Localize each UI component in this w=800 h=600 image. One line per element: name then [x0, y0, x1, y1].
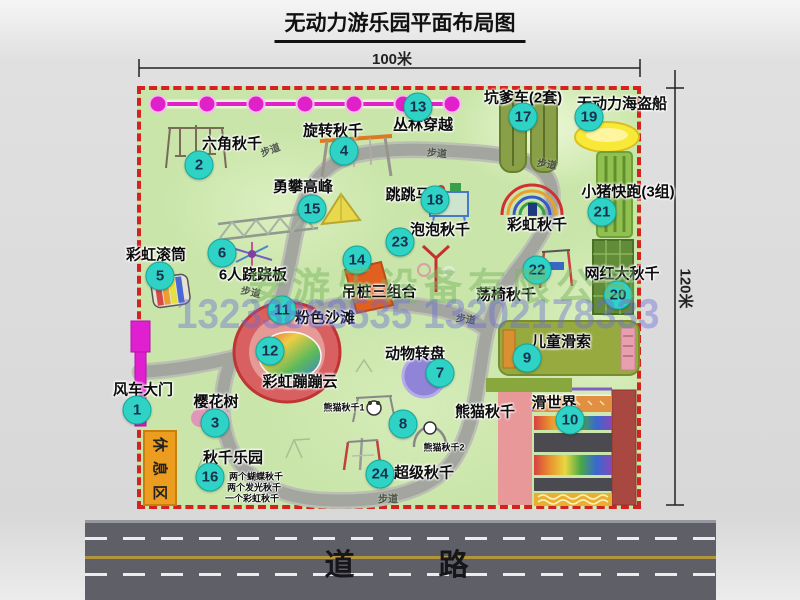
road-label: 道 路 — [325, 540, 477, 584]
attraction-label-24: 超级秋千 — [394, 462, 454, 483]
attraction-badge-17: 17 — [509, 103, 538, 132]
attraction-badge-23: 23 — [386, 228, 415, 257]
attraction-badge-20: 20 — [604, 281, 633, 310]
walkway-label-4: 步道 — [240, 282, 263, 301]
attraction-label-8: 熊猫秋千 — [455, 401, 515, 422]
panda-swing-1-label: 熊猫秋千1 — [323, 401, 364, 414]
rainbow-swing-label: 彩虹秋千 — [507, 214, 567, 235]
attraction-badge-10: 10 — [556, 406, 585, 435]
attraction-label-23: 泡泡秋千 — [410, 219, 470, 240]
attraction-badge-22: 22 — [523, 256, 552, 285]
walkway-label-5: 步道 — [455, 309, 477, 327]
attraction-label-14: 吊桩三组合 — [341, 281, 416, 302]
road: 道 路 — [85, 520, 716, 600]
attraction-badge-14: 14 — [343, 246, 372, 275]
attraction-badge-2: 2 — [185, 151, 214, 180]
attraction-badge-5: 5 — [146, 262, 175, 291]
attraction-badge-18: 18 — [421, 186, 450, 215]
attraction-badge-13: 13 — [404, 93, 433, 122]
attraction-badge-6: 6 — [208, 239, 237, 268]
attraction-badge-9: 9 — [513, 344, 542, 373]
attraction-badge-4: 4 — [330, 137, 359, 166]
attraction-badge-3: 3 — [201, 409, 230, 438]
attraction-label-11: 粉色沙滩 — [295, 307, 355, 328]
attraction-label-4: 旋转秋千 — [303, 120, 363, 141]
swing-park-note-3: 一个彩虹秋千 — [225, 492, 279, 505]
attraction-badge-1: 1 — [123, 396, 152, 425]
park-layout-screenshot: 无动力游乐园平面布局图 100米 120米 — [0, 0, 800, 600]
attraction-badge-21: 21 — [588, 198, 617, 227]
attraction-badge-19: 19 — [575, 103, 604, 132]
attraction-badge-16: 16 — [196, 463, 225, 492]
attraction-badge-8: 8 — [389, 410, 418, 439]
attraction-label-9: 儿童滑索 — [531, 331, 591, 352]
attraction-badge-7: 7 — [426, 359, 455, 388]
walkway-label-2: 步道 — [426, 144, 447, 161]
attraction-label-15: 勇攀高峰 — [273, 176, 333, 197]
attraction-badge-11: 11 — [268, 296, 297, 325]
attraction-label-6: 6人跷跷板 — [219, 264, 287, 285]
attraction-badge-15: 15 — [298, 195, 327, 224]
attraction-markers: 风车大门1六角秋千2樱花树3旋转秋千4彩虹滚筒56人跷跷板6动物转盘7熊猫秋千8… — [0, 0, 800, 600]
attraction-label-12: 彩虹蹦蹦云 — [262, 371, 337, 392]
walkway-label-6: 步道 — [378, 491, 398, 506]
attraction-label-2: 六角秋千 — [202, 133, 262, 154]
attraction-badge-24: 24 — [366, 460, 395, 489]
walkway-label-3: 步道 — [536, 154, 558, 172]
attraction-label-22: 荡椅秋千 — [476, 284, 536, 305]
panda-swing-2-label: 熊猫秋千2 — [423, 441, 464, 454]
attraction-badge-12: 12 — [256, 337, 285, 366]
